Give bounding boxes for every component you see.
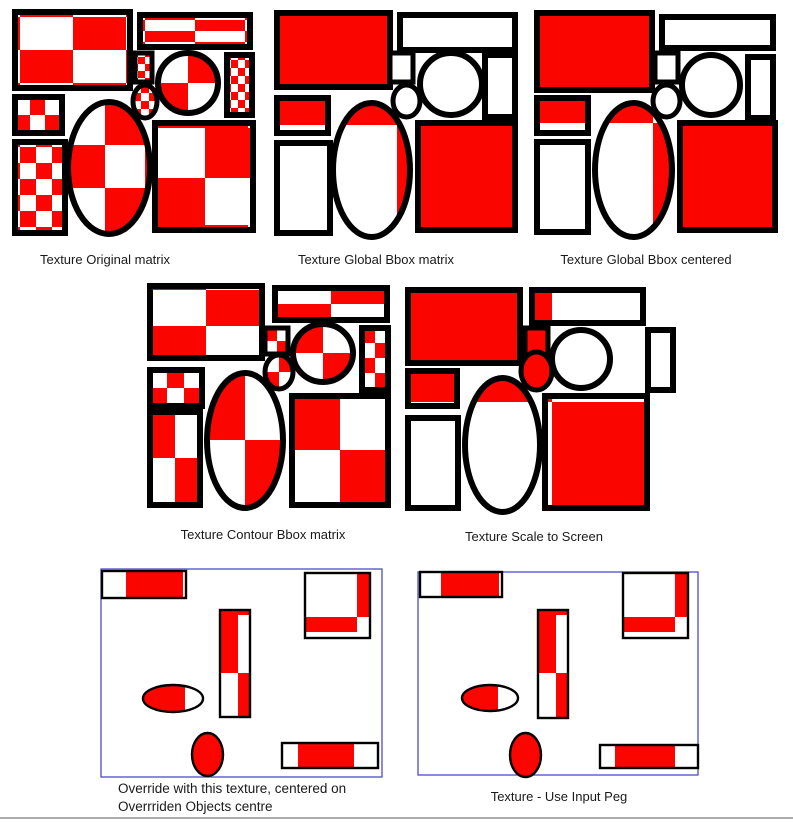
page-divider-line <box>0 817 793 819</box>
panel-global-bbox-centered <box>537 13 775 237</box>
caption-override-texture: Override with this texture, centered on … <box>118 780 418 815</box>
caption-override-line2: Overrriden Objects centre <box>118 798 418 816</box>
panel-original-matrix <box>15 12 253 234</box>
caption-texture-original-matrix: Texture Original matrix <box>15 252 195 268</box>
caption-override-line1: Override with this texture, centered on <box>118 780 418 798</box>
caption-texture-contour-bbox-matrix: Texture Contour Bbox matrix <box>167 527 359 543</box>
panel-use-input-peg <box>418 572 698 777</box>
shapes-canvas <box>0 0 793 822</box>
panel-scale-to-screen <box>408 290 673 512</box>
caption-texture-use-input-peg: Texture - Use Input Peg <box>462 789 656 805</box>
caption-texture-global-bbox-matrix: Texture Global Bbox matrix <box>286 252 466 268</box>
caption-texture-scale-to-screen: Texture Scale to Screen <box>438 529 630 545</box>
panel-override-texture-centered <box>101 569 382 777</box>
texture-modes-figure: Texture Original matrix Texture Global B… <box>0 0 793 822</box>
panel-contour-bbox-matrix <box>150 286 388 508</box>
caption-texture-global-bbox-centered: Texture Global Bbox centered <box>550 252 742 268</box>
panel-global-bbox-matrix <box>277 13 515 237</box>
